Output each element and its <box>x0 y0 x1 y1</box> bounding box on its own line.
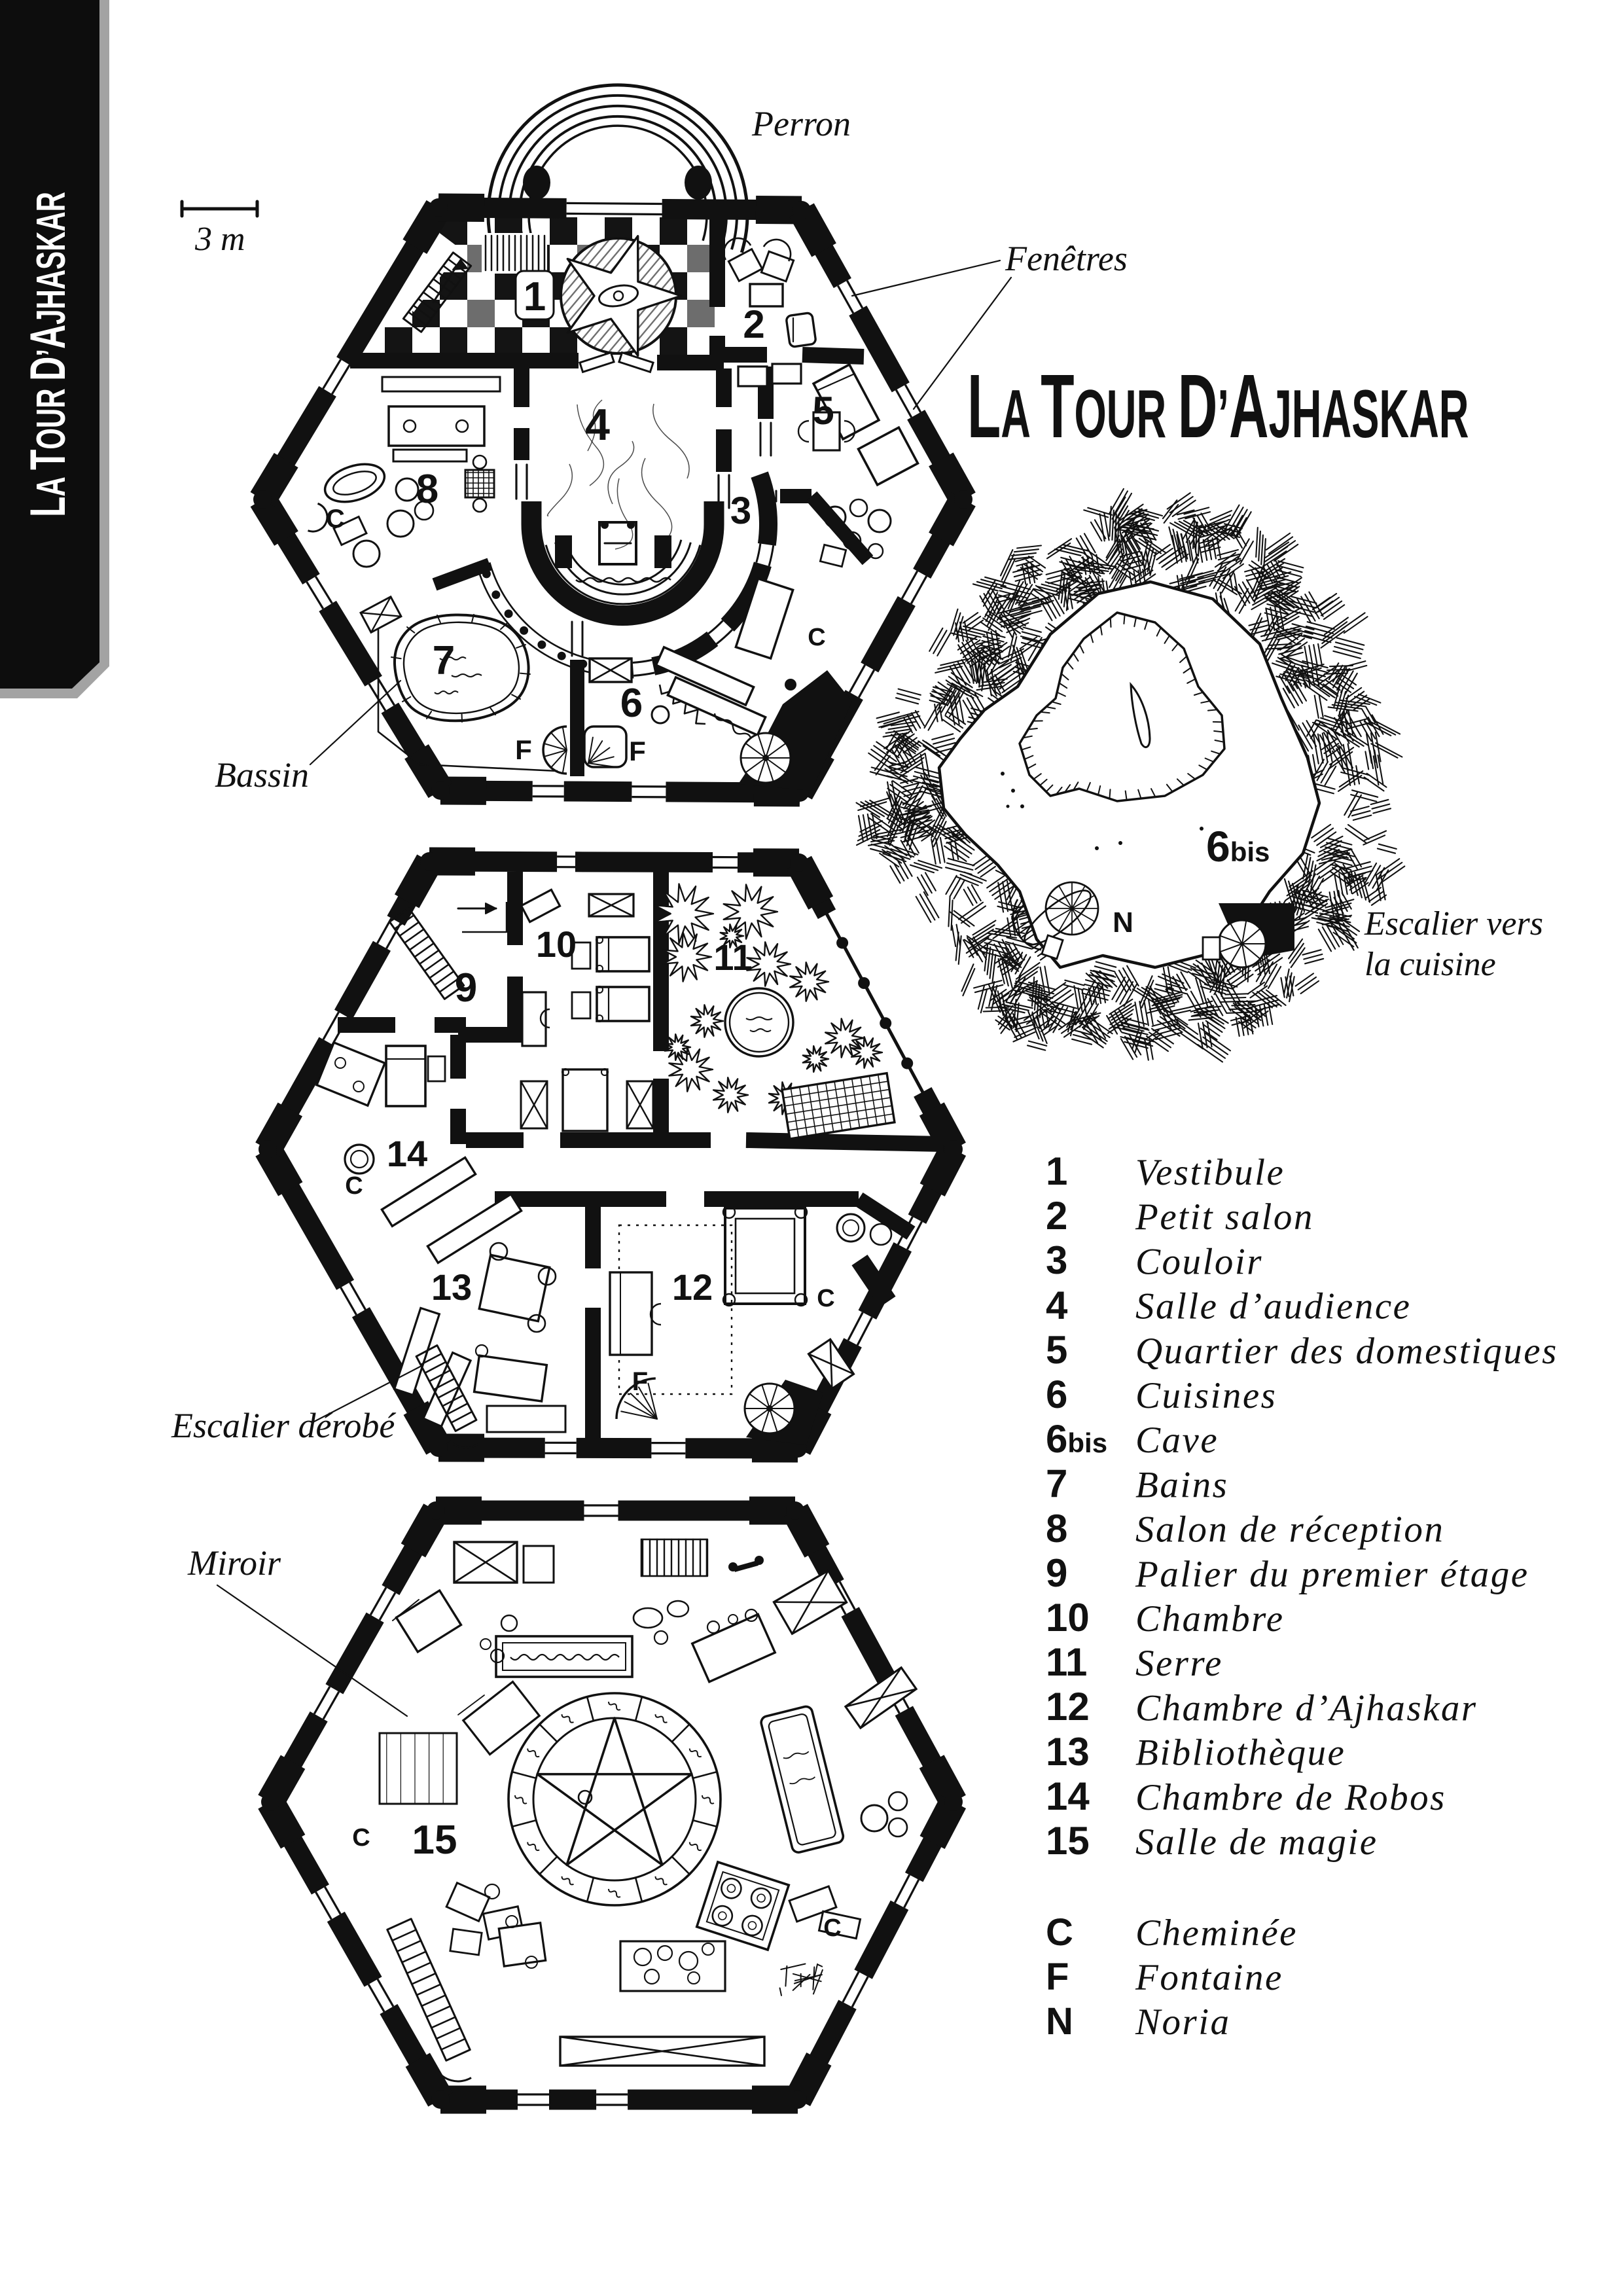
svg-text:3: 3 <box>730 490 751 532</box>
svg-text:Palier du premier étage: Palier du premier étage <box>1135 1554 1529 1595</box>
svg-text:9: 9 <box>1046 1551 1067 1595</box>
svg-text:6: 6 <box>1046 1372 1067 1416</box>
svg-text:Chambre: Chambre <box>1135 1598 1285 1640</box>
svg-text:C: C <box>345 1172 363 1200</box>
svg-text:C: C <box>1046 1911 1073 1954</box>
svg-text:11: 11 <box>1046 1640 1087 1684</box>
svg-text:C: C <box>823 1914 841 1942</box>
svg-text:Bains: Bains <box>1135 1464 1228 1505</box>
svg-text:Fenêtres: Fenêtres <box>1005 239 1128 278</box>
svg-text:Petit salon: Petit salon <box>1135 1196 1314 1238</box>
svg-text:Vestibule: Vestibule <box>1135 1152 1285 1193</box>
svg-text:2: 2 <box>1046 1194 1067 1238</box>
svg-text:1: 1 <box>524 274 546 319</box>
svg-text:Cave: Cave <box>1135 1420 1219 1461</box>
svg-text:12: 12 <box>672 1266 713 1308</box>
svg-text:2: 2 <box>743 302 764 346</box>
svg-text:C: C <box>817 1285 834 1312</box>
svg-text:la cuisine: la cuisine <box>1364 946 1496 983</box>
svg-text:C: C <box>352 1824 370 1852</box>
svg-text:Salon de réception: Salon de réception <box>1135 1509 1444 1551</box>
svg-text:Perron: Perron <box>751 104 851 143</box>
svg-text:4: 4 <box>1046 1283 1068 1327</box>
svg-text:Cuisines: Cuisines <box>1135 1375 1277 1416</box>
svg-text:Quartier des domestiques: Quartier des domestiques <box>1135 1331 1558 1372</box>
svg-text:7: 7 <box>1046 1462 1067 1505</box>
svg-text:Chambre d’Ajhaskar: Chambre d’Ajhaskar <box>1135 1687 1478 1729</box>
svg-text:Salle de magie: Salle de magie <box>1135 1821 1378 1863</box>
svg-text:Escalier vers: Escalier vers <box>1364 905 1543 942</box>
svg-text:8: 8 <box>1046 1507 1067 1551</box>
svg-text:Serre: Serre <box>1135 1643 1223 1684</box>
svg-text:F: F <box>629 736 646 766</box>
svg-text:13: 13 <box>431 1266 472 1308</box>
svg-text:N: N <box>1046 2000 1073 2043</box>
svg-text:7: 7 <box>433 638 455 683</box>
svg-text:Salle d’audience: Salle d’audience <box>1135 1286 1411 1327</box>
svg-text:10: 10 <box>1046 1596 1090 1640</box>
svg-text:C: C <box>326 505 345 533</box>
svg-text:Cheminée: Cheminée <box>1135 1912 1298 1954</box>
svg-text:5: 5 <box>812 389 834 433</box>
svg-text:1: 1 <box>1046 1149 1067 1193</box>
svg-text:14: 14 <box>1046 1774 1090 1818</box>
svg-text:5: 5 <box>1046 1328 1067 1372</box>
svg-text:Noria: Noria <box>1135 2001 1231 2043</box>
svg-text:9: 9 <box>455 965 477 1011</box>
svg-text:3 m: 3 m <box>194 221 245 258</box>
svg-text:4: 4 <box>585 400 610 450</box>
svg-text:F: F <box>515 734 532 765</box>
svg-text:10: 10 <box>536 924 577 965</box>
svg-text:15: 15 <box>412 1818 457 1863</box>
svg-text:8: 8 <box>416 467 438 512</box>
svg-text:13: 13 <box>1046 1730 1090 1774</box>
svg-text:Bassin: Bassin <box>215 755 309 795</box>
svg-text:Bibliothèque: Bibliothèque <box>1135 1732 1346 1774</box>
svg-text:Chambre de Robos: Chambre de Robos <box>1135 1777 1446 1818</box>
svg-text:F: F <box>1046 1956 1069 1998</box>
svg-text:Escalier dérobé: Escalier dérobé <box>171 1406 396 1445</box>
svg-text:6: 6 <box>620 681 643 726</box>
svg-text:3: 3 <box>1046 1238 1067 1282</box>
svg-text:Couloir: Couloir <box>1135 1241 1263 1282</box>
svg-text:Miroir: Miroir <box>187 1543 281 1583</box>
svg-text:C: C <box>808 624 825 651</box>
svg-text:15: 15 <box>1046 1819 1090 1863</box>
svg-text:LA TOUR D’AJHASKAR: LA TOUR D’AJHASKAR <box>20 192 76 517</box>
svg-text:Fontaine: Fontaine <box>1135 1957 1283 1998</box>
svg-text:F: F <box>632 1367 648 1396</box>
svg-text:N: N <box>1113 906 1133 939</box>
svg-text:14: 14 <box>387 1133 427 1174</box>
svg-text:12: 12 <box>1046 1685 1090 1729</box>
svg-text:11: 11 <box>713 937 752 978</box>
